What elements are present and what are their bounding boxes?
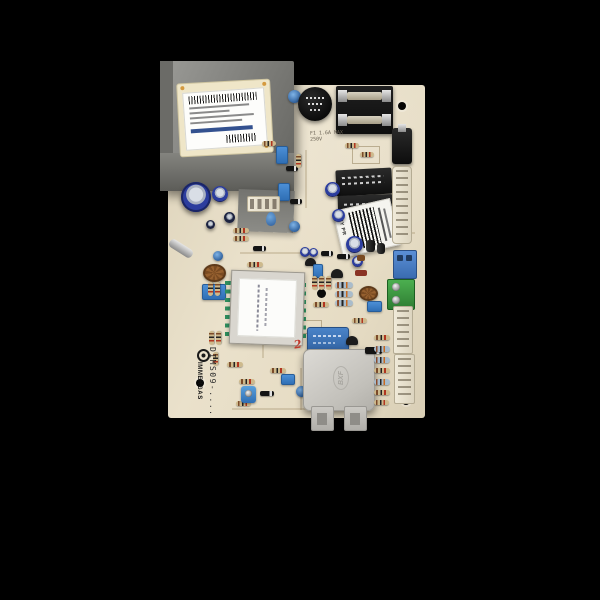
transistor — [346, 336, 358, 345]
resistor — [319, 276, 324, 290]
electrolytic-capacitor — [309, 248, 318, 257]
board-via-hole — [317, 289, 326, 298]
resistor — [374, 400, 389, 405]
electrolytic-capacitor — [212, 186, 228, 202]
resistor — [335, 282, 353, 288]
resistor — [374, 390, 390, 395]
diode — [253, 246, 266, 251]
electrolytic-capacitor — [224, 212, 235, 223]
diode — [337, 254, 350, 259]
edge-connector-middle — [392, 166, 412, 244]
transformer-pin — [180, 86, 184, 90]
fuse-rating-silkscreen: F1 1.6A MAX 250V — [310, 129, 354, 143]
terminal-block-blue — [393, 250, 417, 279]
bxf-logo: BXF — [333, 366, 349, 390]
electrolytic-capacitor — [325, 182, 340, 197]
resistor — [360, 152, 374, 157]
diode — [290, 199, 302, 204]
mounting-hole-top-right — [398, 102, 406, 110]
varistor-marking — [308, 103, 322, 105]
resistor — [374, 357, 390, 363]
ic-label-text-column — [264, 288, 267, 328]
diode — [260, 391, 274, 396]
transformer-core-front — [160, 153, 294, 191]
resistor — [374, 368, 390, 373]
trimmer-capacitor — [241, 386, 256, 403]
resistor — [374, 335, 390, 340]
connector-foot-left — [311, 406, 334, 431]
fuse-clip — [338, 90, 347, 102]
large-electrolytic-capacitor — [181, 182, 211, 212]
resistor — [227, 362, 243, 367]
varistor-marking — [306, 97, 324, 99]
toroid-inductor — [359, 286, 378, 301]
mkp-capacitor-marking — [313, 335, 341, 337]
blue-disc-capacitor — [213, 251, 223, 261]
resistor — [262, 141, 276, 146]
transformer-pin — [262, 82, 266, 86]
electrolytic-capacitor — [332, 209, 345, 222]
small-black-capacitor — [377, 243, 385, 254]
resistor — [345, 143, 359, 148]
diode — [321, 251, 333, 256]
electrolytic-capacitor — [346, 236, 363, 253]
fuse-clip — [382, 90, 391, 102]
resistor — [313, 302, 329, 307]
brand-text: IMMERGAS — [196, 362, 202, 408]
mkp-capacitor-marking — [313, 342, 335, 344]
model-text: DIMS09-.... — [208, 347, 217, 423]
small-black-capacitor — [366, 240, 375, 252]
ic-label — [237, 278, 297, 338]
ferrite-bead — [357, 255, 365, 261]
trimmer-screw — [245, 390, 252, 397]
blue-disc-capacitor — [289, 221, 300, 232]
transformer-label-text-line — [190, 110, 230, 115]
edge-connector-a — [393, 306, 413, 354]
film-capacitor — [276, 146, 288, 164]
resistor — [335, 291, 353, 297]
handwritten-qc-mark: 2 — [293, 337, 303, 351]
resistor — [215, 282, 220, 296]
tantalum-capacitor — [266, 212, 276, 226]
microcontroller-ic — [229, 270, 306, 347]
spark-transformer: BXF — [303, 349, 375, 411]
mains-transformer — [160, 61, 294, 191]
electrolytic-capacitor — [206, 220, 215, 229]
resistor — [352, 318, 367, 323]
resistor — [270, 368, 286, 373]
terminal-hole — [397, 255, 403, 261]
resistor — [296, 154, 301, 168]
glass-fuse-top — [347, 92, 382, 100]
transformer-label-text-line — [189, 103, 249, 109]
resistor — [233, 228, 249, 233]
pcb-trace — [305, 150, 307, 208]
transformer-label — [182, 87, 268, 151]
connector-foot-right — [344, 406, 367, 431]
fuse-clip — [382, 114, 391, 126]
terminal-hole — [406, 255, 412, 261]
terminal-screw — [392, 296, 400, 304]
film-capacitor — [367, 301, 382, 312]
film-capacitor — [281, 374, 295, 385]
mains-connector-contact — [398, 124, 406, 132]
resistor — [216, 331, 221, 345]
resistor — [326, 276, 331, 290]
mains-connector — [392, 128, 412, 164]
varistor-marking — [310, 109, 320, 111]
transformer-label-part-number — [191, 125, 253, 133]
resistor — [239, 379, 255, 384]
resistor — [209, 331, 214, 345]
varistor — [298, 87, 332, 121]
edge-connector-b — [394, 354, 415, 404]
connector-foot-slot — [350, 413, 360, 425]
relay-1 — [335, 168, 392, 197]
power-resistor — [355, 270, 367, 276]
connector-foot-slot — [317, 413, 327, 425]
transformer-label-text-line — [190, 113, 254, 119]
resistor — [312, 276, 317, 290]
fuse-holder-block — [336, 86, 393, 134]
resistor — [233, 236, 249, 241]
transistor — [331, 269, 343, 278]
resistor — [208, 282, 213, 296]
glass-fuse-bottom — [347, 116, 382, 124]
transformer-label-text-line — [190, 119, 242, 125]
transformer-label-barcode-2 — [226, 133, 256, 143]
resistor — [335, 300, 353, 306]
transformer-bobbin — [176, 79, 274, 158]
four-pin-connector — [247, 196, 280, 212]
terminal-screw — [392, 283, 400, 291]
photo-background: F1 1.6A MAX 250V NTY PR — [0, 0, 600, 600]
ic-label-text-column — [256, 285, 260, 331]
resistor — [374, 379, 390, 385]
resistor — [374, 346, 390, 352]
fuse-clip — [338, 114, 347, 126]
toroid-inductor — [203, 264, 226, 282]
film-capacitor — [202, 284, 226, 300]
resistor — [247, 262, 263, 267]
pcb-trace — [232, 408, 310, 410]
